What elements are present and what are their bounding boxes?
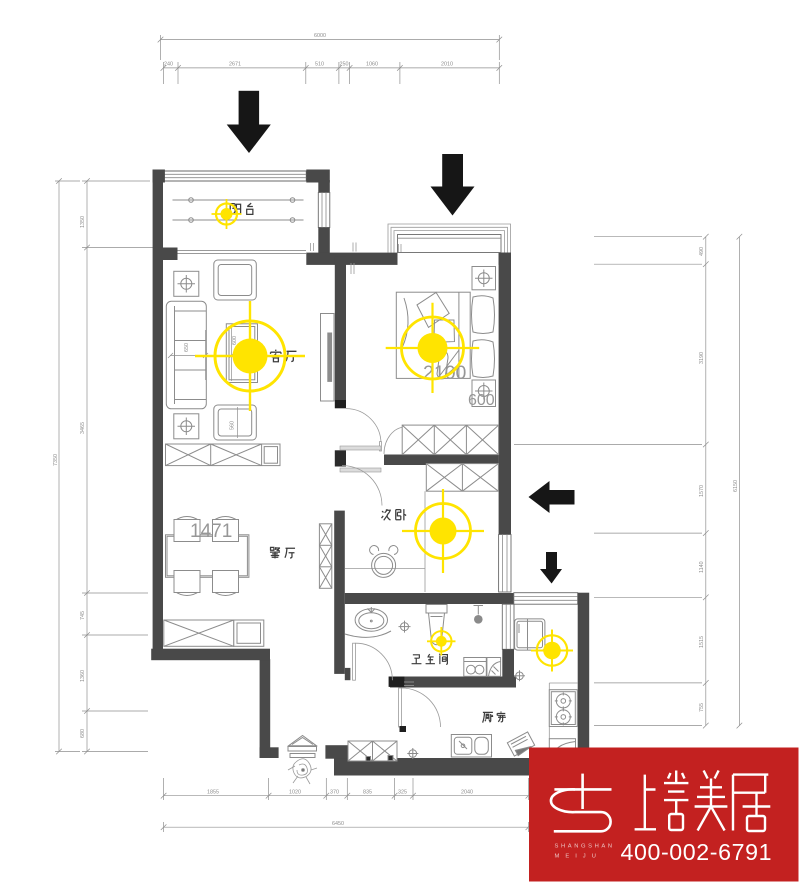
svg-text:650: 650 xyxy=(184,343,190,352)
svg-text:1360: 1360 xyxy=(80,670,86,682)
svg-text:1140: 1140 xyxy=(699,561,705,573)
svg-text:6000: 6000 xyxy=(314,33,326,39)
svg-text:680: 680 xyxy=(80,729,86,738)
svg-text:1060: 1060 xyxy=(366,62,378,68)
svg-text:490: 490 xyxy=(699,247,705,256)
svg-text:510: 510 xyxy=(315,62,324,68)
svg-text:6150: 6150 xyxy=(733,480,739,492)
svg-text:600: 600 xyxy=(232,336,238,345)
svg-text:1855: 1855 xyxy=(207,790,219,796)
svg-text:3190: 3190 xyxy=(699,352,705,364)
svg-text:1350: 1350 xyxy=(80,216,86,228)
svg-text:835: 835 xyxy=(363,790,372,796)
svg-text:1515: 1515 xyxy=(699,636,705,648)
svg-text:2010: 2010 xyxy=(441,62,453,68)
svg-text:560: 560 xyxy=(230,421,236,430)
svg-text:1570: 1570 xyxy=(699,485,705,497)
svg-text:MEIJU: MEIJU xyxy=(555,854,602,860)
svg-text:7350: 7350 xyxy=(53,454,59,466)
svg-text:400-002-6791: 400-002-6791 xyxy=(621,839,773,865)
svg-text:3465: 3465 xyxy=(80,422,86,434)
svg-text:600: 600 xyxy=(468,392,495,409)
svg-text:1020: 1020 xyxy=(289,790,301,796)
svg-text:SHANGSHAN: SHANGSHAN xyxy=(555,844,615,850)
svg-text:325: 325 xyxy=(398,790,407,796)
svg-text:755: 755 xyxy=(699,703,705,712)
svg-text:2040: 2040 xyxy=(461,790,473,796)
svg-text:745: 745 xyxy=(80,611,86,620)
svg-text:240: 240 xyxy=(164,62,173,68)
svg-text:250: 250 xyxy=(340,62,349,68)
svg-text:6450: 6450 xyxy=(332,821,344,827)
svg-text:1471: 1471 xyxy=(190,521,232,542)
svg-text:2671: 2671 xyxy=(229,62,241,68)
svg-text:2100: 2100 xyxy=(423,362,467,384)
svg-text:370: 370 xyxy=(330,790,339,796)
